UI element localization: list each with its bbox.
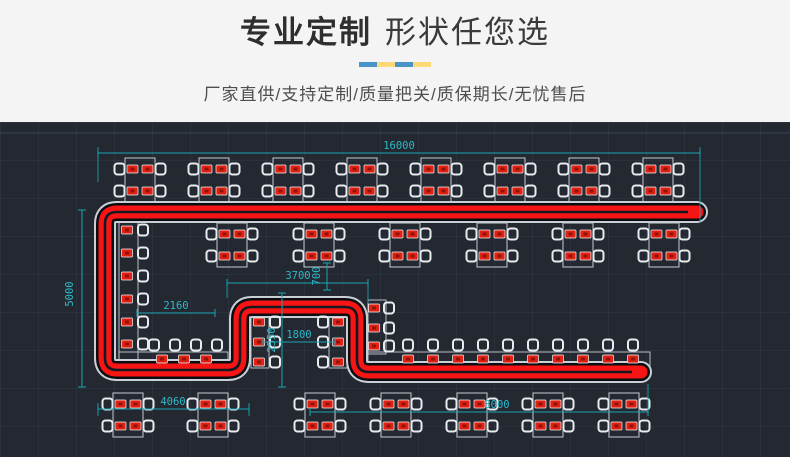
dining-table — [207, 223, 258, 267]
chair — [503, 340, 513, 351]
plate — [275, 165, 286, 173]
chair — [294, 251, 304, 262]
dining-table — [559, 158, 610, 202]
plate — [651, 252, 662, 260]
chair — [599, 399, 609, 410]
divider-segment — [413, 62, 431, 67]
dimension-label: 2160 — [163, 300, 188, 312]
dining-table — [115, 158, 166, 202]
chair — [138, 294, 148, 305]
chair — [411, 186, 421, 197]
dimension-label: 8000 — [484, 399, 509, 411]
plate — [565, 230, 576, 238]
plate — [122, 340, 133, 348]
chair — [412, 399, 422, 410]
plate — [215, 400, 226, 408]
plate — [503, 355, 514, 363]
plate — [307, 422, 318, 430]
floor-plan-panel: 160005000370070021601800255040608000 — [0, 122, 790, 457]
chair — [212, 340, 222, 351]
plate — [115, 400, 126, 408]
chair — [508, 229, 518, 240]
plate — [306, 230, 317, 238]
chair — [639, 251, 649, 262]
page-title: 专业定制形状任您选 — [0, 0, 790, 51]
plate — [130, 400, 141, 408]
plate — [603, 355, 614, 363]
chair — [189, 186, 199, 197]
chair — [523, 421, 533, 432]
dimension-label: 1800 — [286, 329, 311, 341]
plate — [428, 355, 439, 363]
plate — [660, 187, 671, 195]
dining-table — [599, 393, 650, 437]
dining-table — [523, 393, 574, 437]
plate — [142, 187, 153, 195]
plate — [369, 304, 380, 312]
plate — [407, 252, 418, 260]
plate — [234, 252, 245, 260]
chair — [674, 186, 684, 197]
chair — [478, 340, 488, 351]
chair — [452, 186, 462, 197]
chair — [447, 399, 457, 410]
chair — [248, 229, 258, 240]
plate — [626, 400, 637, 408]
plate — [122, 226, 133, 234]
plate — [628, 355, 639, 363]
title-bold: 专业定制 — [240, 15, 372, 50]
plate — [200, 400, 211, 408]
dining-table — [485, 158, 536, 202]
chair — [138, 317, 148, 328]
plate — [586, 165, 597, 173]
dining-table — [380, 223, 431, 267]
plate — [479, 230, 490, 238]
plate — [611, 400, 622, 408]
plate — [459, 400, 470, 408]
plate — [535, 422, 546, 430]
chair — [335, 229, 345, 240]
plate — [550, 400, 561, 408]
chair — [384, 303, 394, 314]
plate — [364, 187, 375, 195]
plate — [333, 318, 344, 326]
plate — [122, 272, 133, 280]
dining-table — [411, 158, 462, 202]
chair — [138, 225, 148, 236]
plate — [369, 342, 380, 350]
chair — [428, 340, 438, 351]
plate — [578, 355, 589, 363]
chair — [553, 229, 563, 240]
dining-table — [103, 393, 154, 437]
plate — [571, 187, 582, 195]
plate — [512, 187, 523, 195]
plate — [349, 187, 360, 195]
plate — [571, 165, 582, 173]
chair — [452, 164, 462, 175]
plate — [528, 355, 539, 363]
plate — [215, 422, 226, 430]
plate — [478, 355, 489, 363]
dimension-5000: 5000 — [64, 210, 86, 387]
chair — [421, 229, 431, 240]
chair — [156, 186, 166, 197]
plate — [553, 355, 564, 363]
plate — [333, 358, 344, 366]
plate — [254, 358, 265, 366]
dining-table — [337, 158, 388, 202]
chair — [384, 323, 394, 334]
dining-table — [633, 158, 684, 202]
chair — [188, 421, 198, 432]
plate — [200, 422, 211, 430]
chair — [603, 340, 613, 351]
chair — [248, 251, 258, 262]
dimension-label: 700 — [311, 267, 323, 286]
divider-segment — [359, 62, 377, 67]
plate — [122, 249, 133, 257]
plate — [423, 187, 434, 195]
chair — [138, 339, 148, 350]
plate — [234, 230, 245, 238]
plate — [497, 165, 508, 173]
dining-table — [553, 223, 604, 267]
chair — [294, 229, 304, 240]
plate — [306, 252, 317, 260]
plate — [219, 252, 230, 260]
chair — [553, 251, 563, 262]
plate — [550, 422, 561, 430]
chair — [337, 186, 347, 197]
chair — [156, 164, 166, 175]
plate — [122, 318, 133, 326]
plate — [369, 324, 380, 332]
plate — [438, 187, 449, 195]
chair — [680, 229, 690, 240]
dining-table — [371, 393, 422, 437]
chair — [411, 164, 421, 175]
dining-table — [467, 223, 518, 267]
chair — [170, 340, 180, 351]
chair — [144, 399, 154, 410]
plate — [216, 165, 227, 173]
plate — [565, 252, 576, 260]
chair — [680, 251, 690, 262]
dimension-label: 16000 — [383, 140, 415, 152]
chair — [421, 251, 431, 262]
plate — [349, 165, 360, 173]
chair — [485, 186, 495, 197]
chair — [191, 340, 201, 351]
chair — [526, 186, 536, 197]
plate — [321, 252, 332, 260]
chair — [594, 229, 604, 240]
chair — [263, 164, 273, 175]
chair — [304, 164, 314, 175]
plate — [474, 422, 485, 430]
chair — [467, 251, 477, 262]
plate — [392, 252, 403, 260]
plate — [201, 165, 212, 173]
chair — [553, 340, 563, 351]
plate — [407, 230, 418, 238]
chair — [304, 186, 314, 197]
chair — [564, 399, 574, 410]
plate — [115, 422, 126, 430]
chair — [378, 164, 388, 175]
chair — [230, 164, 240, 175]
plate — [494, 252, 505, 260]
chair — [384, 341, 394, 352]
plate — [626, 422, 637, 430]
dining-table — [188, 393, 239, 437]
plate — [275, 187, 286, 195]
title-divider — [0, 62, 790, 67]
chair — [633, 186, 643, 197]
chair — [467, 229, 477, 240]
plate — [494, 230, 505, 238]
plate — [127, 165, 138, 173]
chair — [138, 271, 148, 282]
chair — [559, 186, 569, 197]
chair — [674, 164, 684, 175]
chair — [371, 399, 381, 410]
chair — [639, 229, 649, 240]
plate — [307, 400, 318, 408]
plate — [201, 355, 212, 363]
plate — [459, 422, 470, 430]
plate — [130, 422, 141, 430]
promo-banner: 专业定制形状任您选 厂家直供/支持定制/质量把关/质保期长/无忧售后 16000… — [0, 0, 790, 457]
plate — [586, 187, 597, 195]
plate — [479, 252, 490, 260]
dining-table — [189, 158, 240, 202]
plate — [497, 187, 508, 195]
plate — [383, 422, 394, 430]
plate — [321, 230, 332, 238]
plate — [322, 400, 333, 408]
plate — [179, 355, 190, 363]
chair — [318, 357, 328, 368]
chair — [318, 317, 328, 328]
chair — [270, 317, 280, 328]
plate — [645, 187, 656, 195]
plate — [611, 422, 622, 430]
plate — [122, 295, 133, 303]
chair — [378, 186, 388, 197]
plate — [290, 165, 301, 173]
dimension-label: 4060 — [160, 396, 185, 408]
chair — [149, 340, 159, 351]
chair — [640, 421, 650, 432]
chair — [599, 421, 609, 432]
chair — [229, 421, 239, 432]
plate — [651, 230, 662, 238]
plate — [398, 400, 409, 408]
chair — [485, 164, 495, 175]
dining-table — [639, 223, 690, 267]
plate — [216, 187, 227, 195]
chair — [189, 164, 199, 175]
chair — [270, 357, 280, 368]
chair — [447, 421, 457, 432]
floor-plan-canvas: 160005000370070021601800255040608000 — [0, 122, 790, 457]
chair — [230, 186, 240, 197]
chair — [103, 399, 113, 410]
divider-segment — [377, 62, 395, 67]
dimension-label: 3700 — [285, 270, 310, 282]
plate — [512, 165, 523, 173]
plate — [580, 252, 591, 260]
chair — [600, 186, 610, 197]
plate — [438, 165, 449, 173]
chair — [488, 421, 498, 432]
chair — [336, 421, 346, 432]
plate — [423, 165, 434, 173]
chair — [403, 340, 413, 351]
dining-table — [263, 158, 314, 202]
chair — [263, 186, 273, 197]
chair — [628, 340, 638, 351]
chair — [336, 399, 346, 410]
plate — [219, 230, 230, 238]
title-regular: 形状任您选 — [385, 15, 550, 50]
chair — [633, 164, 643, 175]
chair — [138, 248, 148, 259]
plate — [142, 165, 153, 173]
plate — [453, 355, 464, 363]
chair — [526, 164, 536, 175]
chair — [295, 421, 305, 432]
chair — [295, 399, 305, 410]
chair — [600, 164, 610, 175]
plate — [127, 187, 138, 195]
chair — [115, 164, 125, 175]
plate — [364, 165, 375, 173]
plate — [157, 355, 168, 363]
chair — [594, 251, 604, 262]
plate — [403, 355, 414, 363]
chair — [380, 251, 390, 262]
chair — [337, 164, 347, 175]
plate — [474, 400, 485, 408]
plate — [254, 318, 265, 326]
banner-header: 专业定制形状任您选 厂家直供/支持定制/质量把关/质保期长/无忧售后 — [0, 0, 790, 122]
chair — [103, 421, 113, 432]
dining-table — [294, 223, 345, 267]
plate — [645, 165, 656, 173]
chair — [523, 399, 533, 410]
plate — [580, 230, 591, 238]
chair — [508, 251, 518, 262]
divider-segment — [395, 62, 413, 67]
dimension-label: 2550 — [266, 327, 278, 352]
chair — [412, 421, 422, 432]
dimension-label: 5000 — [64, 281, 76, 306]
chair — [559, 164, 569, 175]
plate — [201, 187, 212, 195]
plate — [398, 422, 409, 430]
plate — [535, 400, 546, 408]
subtitle: 厂家直供/支持定制/质量把关/质保期长/无忧售后 — [0, 80, 790, 105]
chair — [229, 399, 239, 410]
chair — [188, 399, 198, 410]
plate — [666, 252, 677, 260]
plate — [290, 187, 301, 195]
chair — [453, 340, 463, 351]
chair — [144, 421, 154, 432]
plate — [660, 165, 671, 173]
chair — [115, 186, 125, 197]
chair — [371, 421, 381, 432]
plate — [322, 422, 333, 430]
plate — [383, 400, 394, 408]
chair — [207, 251, 217, 262]
plate — [666, 230, 677, 238]
chair — [207, 229, 217, 240]
chair — [380, 229, 390, 240]
chair — [564, 421, 574, 432]
dining-table — [295, 393, 346, 437]
chair — [335, 251, 345, 262]
chair — [528, 340, 538, 351]
chair — [578, 340, 588, 351]
plate — [392, 230, 403, 238]
